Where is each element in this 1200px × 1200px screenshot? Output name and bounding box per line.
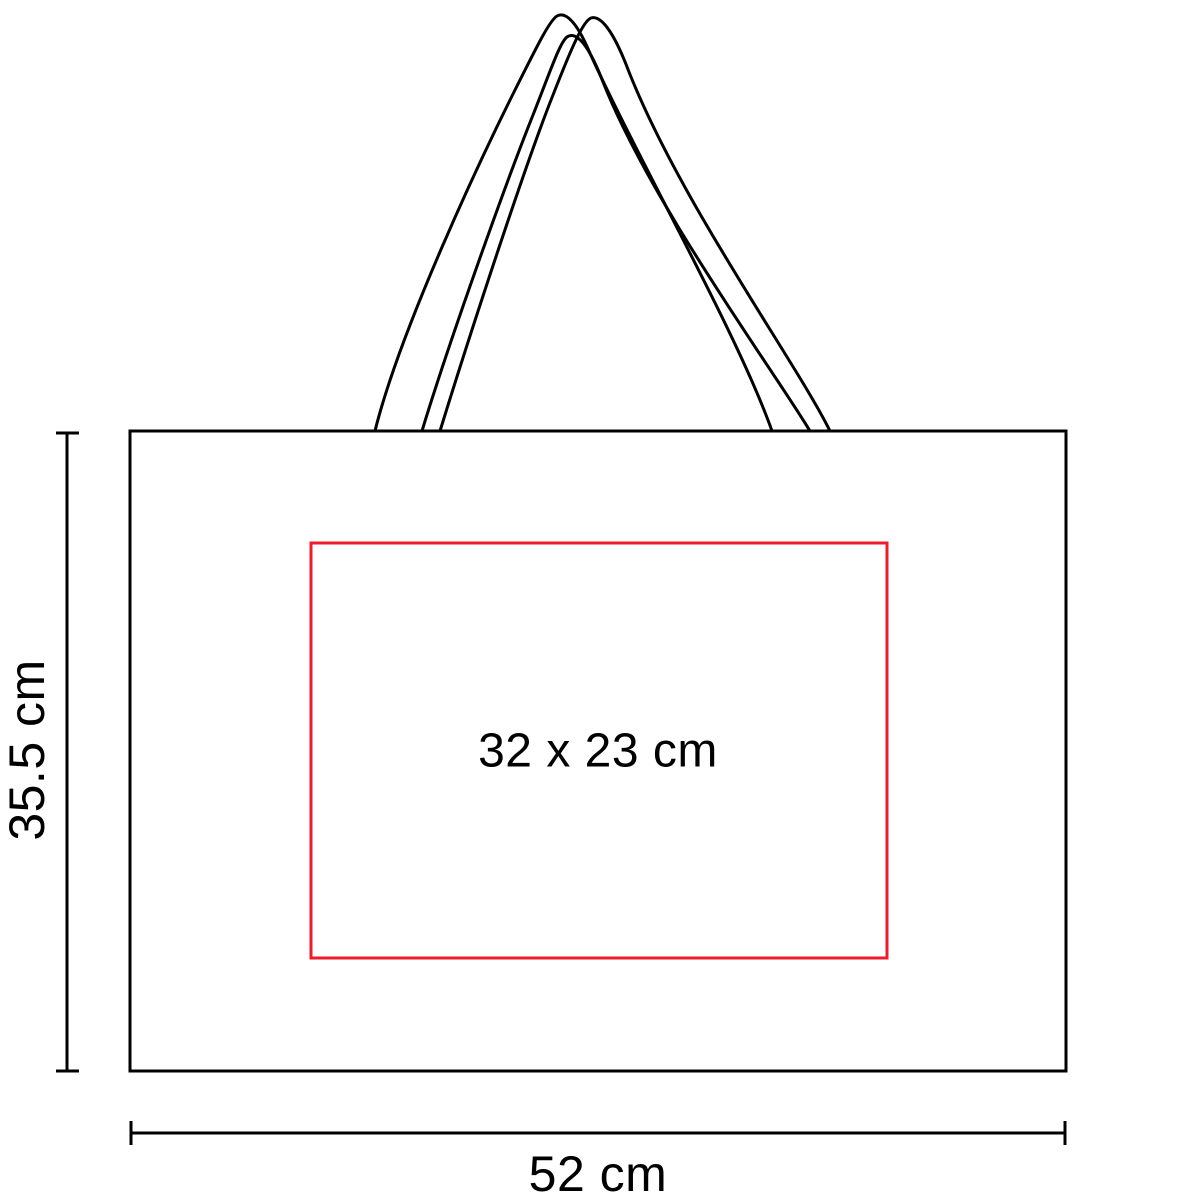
height-dimension-line: [56, 433, 79, 1071]
bag-handle-strap-line-middle: [422, 36, 810, 431]
bag-width-label: 52 cm: [529, 1145, 668, 1200]
bag-handle-strap-line-outer: [375, 15, 772, 431]
bag-height-label: 35.5 cm: [0, 659, 56, 840]
tote-bag-dimension-diagram: 32 x 23 cm 35.5 cm 52 cm: [0, 0, 1200, 1200]
print-area-size-label: 32 x 23 cm: [478, 724, 718, 779]
width-dimension-line: [131, 1121, 1065, 1145]
diagram-drawing: [0, 0, 1200, 1200]
